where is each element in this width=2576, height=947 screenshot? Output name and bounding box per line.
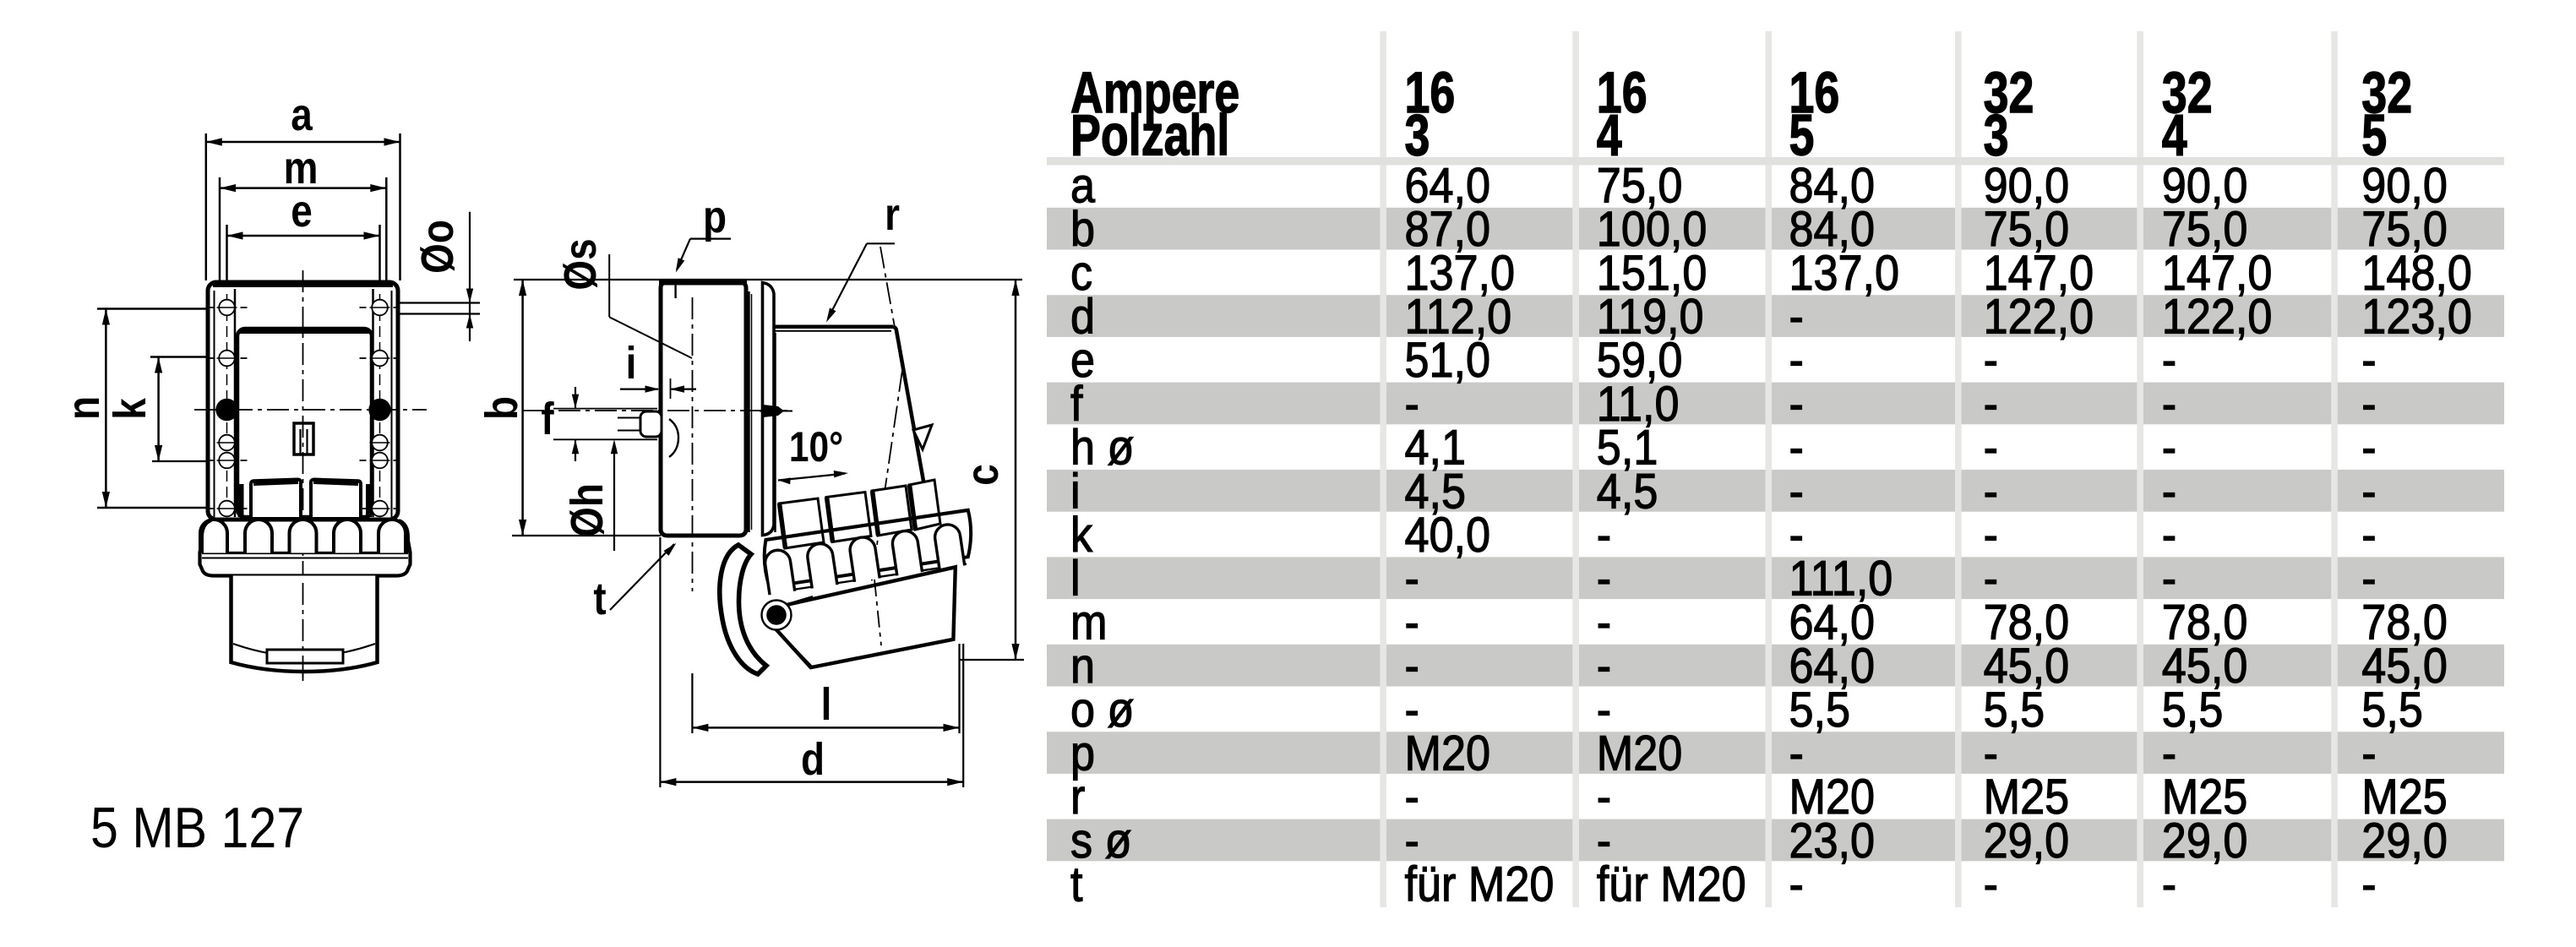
- svg-text:e: e: [291, 186, 313, 237]
- svg-text:10°: 10°: [789, 423, 843, 471]
- svg-text:l: l: [821, 679, 832, 730]
- svg-text:k: k: [105, 398, 155, 420]
- svg-text:b: b: [477, 396, 527, 420]
- svg-text:Øh: Øh: [562, 483, 613, 537]
- svg-text:-: -: [1984, 857, 1998, 912]
- svg-text:122,0: 122,0: [2162, 289, 2273, 344]
- svg-text:t: t: [1070, 857, 1083, 912]
- svg-text:-: -: [1789, 857, 1804, 912]
- svg-text:c: c: [957, 464, 1008, 486]
- svg-text:t: t: [593, 574, 607, 624]
- svg-text:137,0: 137,0: [1789, 245, 1900, 300]
- svg-text:123,0: 123,0: [2361, 289, 2472, 344]
- svg-text:r: r: [885, 189, 900, 240]
- svg-text:i: i: [626, 338, 637, 389]
- svg-text:122,0: 122,0: [1984, 289, 2094, 344]
- svg-text:a: a: [291, 90, 313, 140]
- svg-text:-: -: [2162, 857, 2176, 912]
- svg-text:d: d: [801, 734, 825, 785]
- svg-text:Øs: Øs: [555, 238, 606, 290]
- svg-text:n: n: [58, 396, 109, 420]
- svg-text:5 MB 127: 5 MB 127: [90, 795, 304, 860]
- svg-text:Øo: Øo: [412, 220, 463, 274]
- svg-text:p: p: [703, 192, 727, 242]
- svg-text:für M20: für M20: [1405, 857, 1555, 912]
- svg-text:für M20: für M20: [1597, 857, 1746, 912]
- svg-text:-: -: [2361, 857, 2376, 912]
- svg-text:f: f: [541, 394, 554, 444]
